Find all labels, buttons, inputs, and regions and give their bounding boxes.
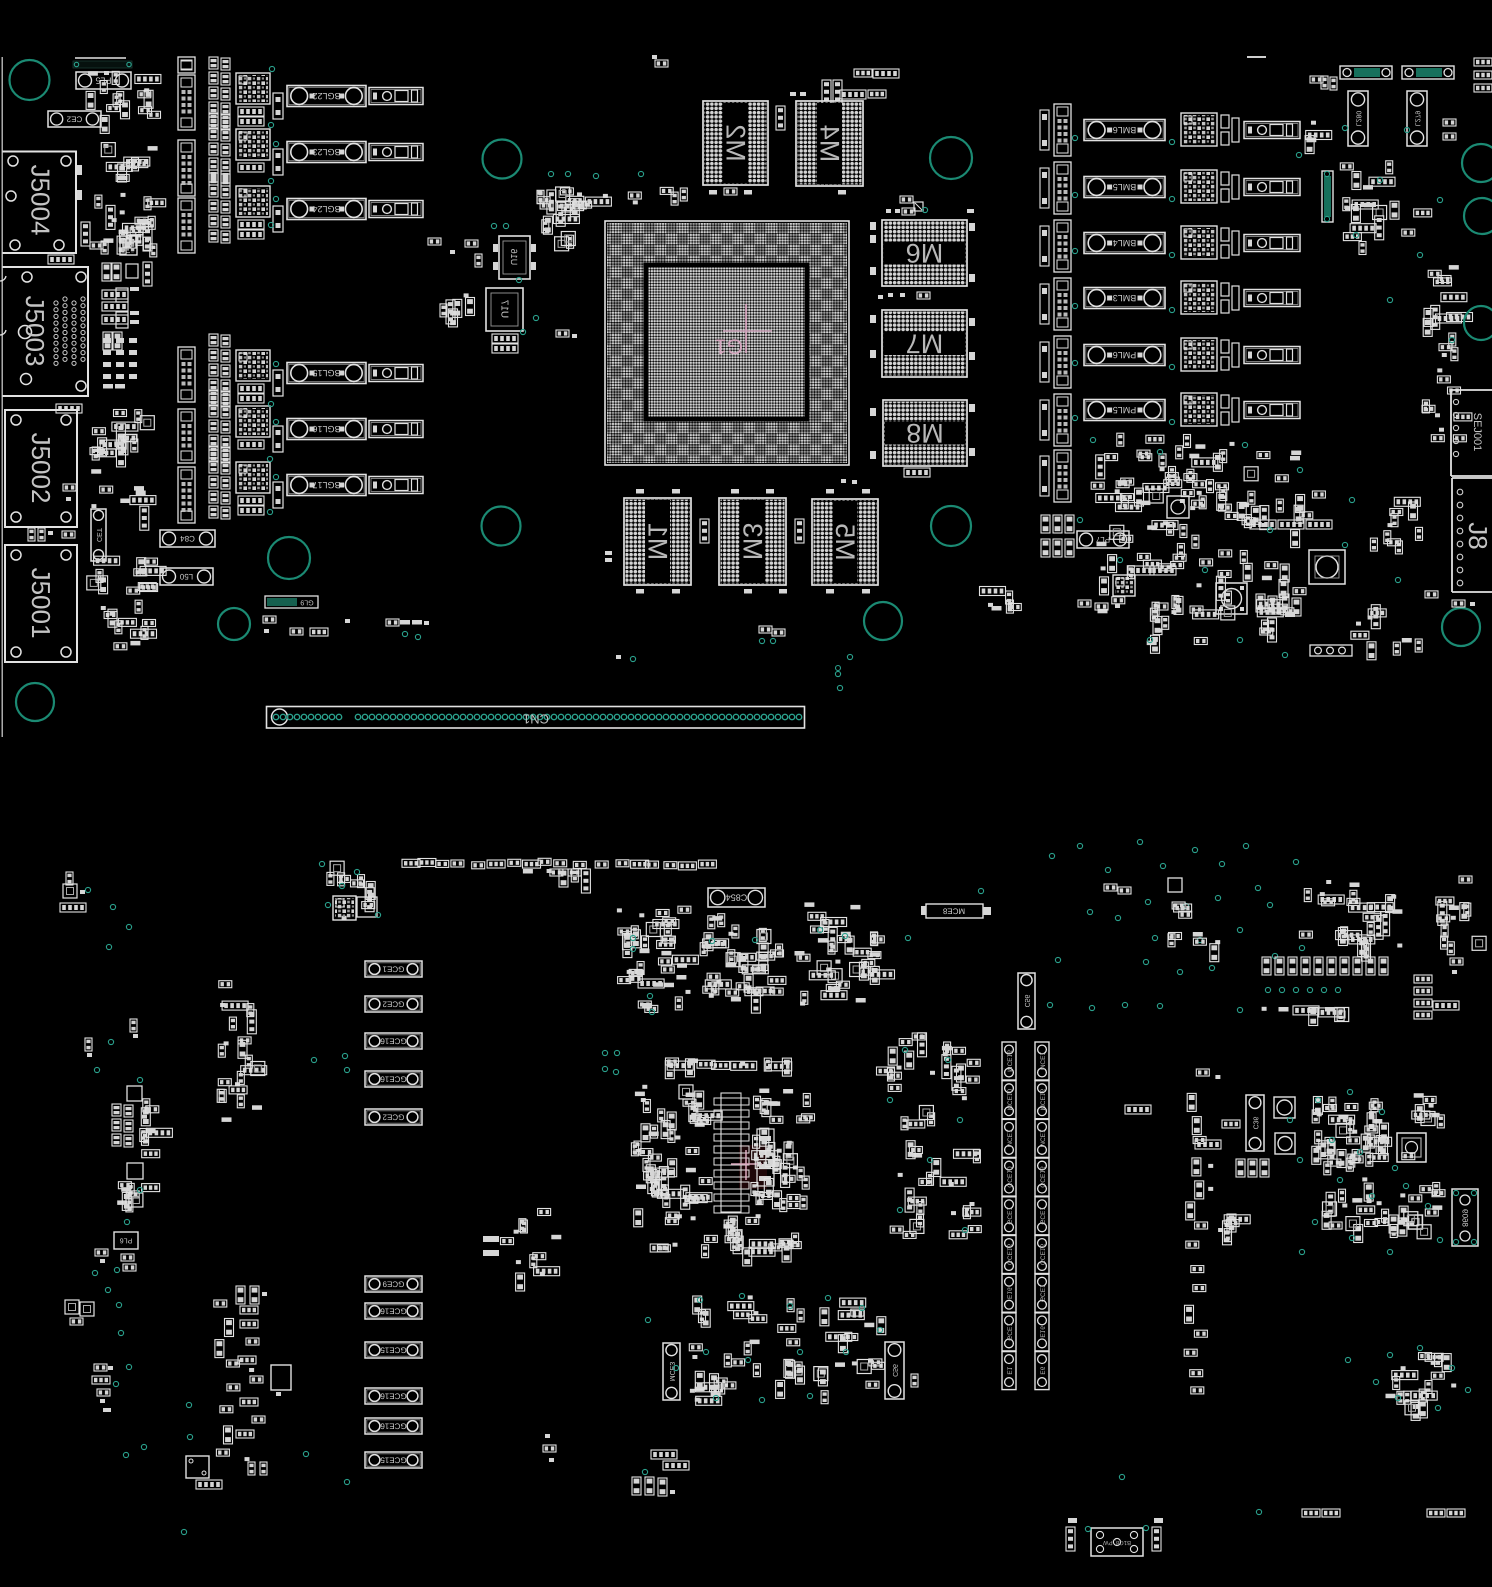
svg-text:8609: 8609 (1461, 1209, 1470, 1227)
svg-text:BGL15: BGL15 (312, 368, 340, 378)
svg-text:J5003: J5003 (20, 296, 50, 367)
svg-text:GCE1: GCE1 (1039, 1284, 1046, 1302)
svg-text:MCE10: MCE10 (1006, 1088, 1013, 1110)
svg-text:U17: U17 (499, 299, 510, 318)
svg-text:GCE16: GCE16 (380, 1392, 407, 1401)
svg-text:BML4: BML4 (1113, 238, 1137, 248)
svg-text:CET: CET (95, 527, 102, 542)
svg-text:C56: C56 (891, 1364, 898, 1377)
svg-text:BGL24: BGL24 (312, 204, 340, 214)
svg-text:GCE2: GCE2 (382, 1000, 404, 1009)
svg-text:M3: M3 (738, 523, 768, 561)
svg-text:BGL16: BGL16 (312, 424, 340, 434)
svg-text:GCE15: GCE15 (380, 1346, 407, 1355)
svg-text:PML6: PML6 (1113, 350, 1137, 360)
svg-text:C854: C854 (726, 893, 748, 903)
svg-text:GCE2: GCE2 (382, 1113, 404, 1122)
svg-text:GCE16: GCE16 (1039, 1166, 1046, 1188)
svg-text:PML5: PML5 (1113, 405, 1137, 415)
svg-text:GCE16: GCE16 (380, 1075, 407, 1084)
svg-text:MCE1: MCE1 (1006, 1129, 1013, 1147)
svg-text:C84: C84 (180, 534, 195, 543)
svg-text:BML5: BML5 (1113, 182, 1137, 192)
svg-text:SEJ001: SEJ001 (1471, 413, 1483, 452)
svg-text:GCE16: GCE16 (1006, 1243, 1013, 1265)
svg-text:L280: L280 (1355, 111, 1362, 127)
svg-text:E1: E1 (1006, 1366, 1013, 1374)
svg-text:G1: G1 (715, 335, 743, 358)
svg-text:J5004: J5004 (26, 165, 56, 236)
svg-text:MCE8: MCE8 (942, 907, 965, 916)
svg-text:GL9: GL9 (300, 599, 313, 606)
svg-text:M2: M2 (721, 124, 751, 162)
svg-text:E16: E16 (1039, 1326, 1046, 1338)
svg-text:MCE3: MCE3 (668, 1362, 675, 1382)
svg-text:MCE1: MCE1 (1039, 1129, 1046, 1147)
svg-text:J8: J8 (1463, 522, 1492, 549)
svg-text:CE2: CE2 (66, 115, 82, 124)
svg-text:BGL23: BGL23 (312, 147, 340, 157)
svg-text:PL6: PL6 (120, 1237, 133, 1244)
svg-text:MCE1: MCE1 (1039, 1052, 1046, 1070)
svg-text:M5: M5 (830, 523, 860, 561)
svg-text:GCE9: GCE9 (382, 1280, 404, 1289)
svg-text:GCE16: GCE16 (1039, 1243, 1046, 1265)
svg-text:GCE1: GCE1 (1006, 1323, 1013, 1341)
svg-text:C56: C56 (1023, 994, 1030, 1007)
svg-text:GCE10: GCE10 (1006, 1166, 1013, 1188)
svg-text:M8: M8 (906, 418, 944, 448)
svg-text:GCE16: GCE16 (380, 1422, 407, 1431)
svg-text:U16: U16 (509, 249, 519, 266)
svg-text:M1: M1 (643, 523, 673, 561)
svg-text:MCE16: MCE16 (1006, 1050, 1013, 1072)
svg-text:L279: L279 (1414, 111, 1421, 127)
svg-text:M7: M7 (906, 329, 944, 359)
svg-text:BGL22: BGL22 (312, 91, 340, 101)
svg-text:L50: L50 (179, 572, 193, 581)
svg-text:J5002: J5002 (26, 433, 56, 504)
svg-text:M4: M4 (815, 125, 845, 163)
svg-text:GCE15: GCE15 (380, 1456, 407, 1465)
svg-text:GCE16: GCE16 (380, 1037, 407, 1046)
svg-text:CN1: CN1 (523, 712, 549, 727)
svg-text:B1C8_PW: B1C8_PW (1103, 1539, 1131, 1546)
svg-text:BML6: BML6 (1113, 125, 1137, 135)
svg-text:BML3: BML3 (1113, 293, 1137, 303)
svg-text:C36: C36 (1252, 1116, 1259, 1129)
svg-text:GCE1: GCE1 (1006, 1207, 1013, 1225)
svg-text:GCE16: GCE16 (380, 1307, 407, 1316)
svg-text:E6: E6 (1039, 1366, 1046, 1374)
svg-text:E16: E16 (1006, 1287, 1013, 1299)
svg-text:MCE16: MCE16 (1039, 1088, 1046, 1110)
svg-text:BGL17: BGL17 (312, 480, 340, 490)
svg-text:J5001: J5001 (26, 568, 56, 639)
svg-text:GCE1: GCE1 (1039, 1207, 1046, 1225)
svg-text:GCE1: GCE1 (382, 965, 404, 974)
svg-text:M6: M6 (906, 238, 944, 268)
